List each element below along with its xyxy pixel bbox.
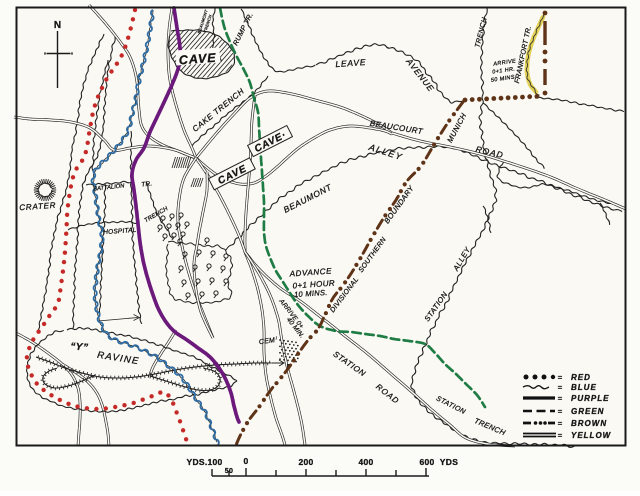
svg-text:=: =: [558, 419, 563, 428]
svg-text:=: =: [558, 394, 563, 403]
svg-text:=: =: [558, 383, 563, 392]
svg-text:600: 600: [419, 457, 434, 467]
svg-text:0: 0: [243, 456, 248, 466]
svg-text:CAVE: CAVE: [178, 51, 217, 68]
svg-text:YDS.: YDS.: [186, 457, 207, 467]
svg-text:YELLOW: YELLOW: [571, 431, 612, 440]
svg-text:400: 400: [358, 457, 373, 467]
svg-text:TR.: TR.: [141, 180, 153, 188]
svg-text:YDS: YDS: [440, 457, 458, 467]
svg-text:=: =: [558, 373, 563, 382]
svg-text:BLUE: BLUE: [571, 383, 597, 392]
svg-text:PURPLE: PURPLE: [571, 394, 609, 403]
svg-text:“Y”: “Y”: [70, 341, 89, 354]
svg-text:50: 50: [225, 468, 233, 475]
svg-text:200: 200: [298, 457, 313, 467]
svg-text:BROWN: BROWN: [571, 419, 607, 428]
svg-text:RED: RED: [571, 373, 591, 382]
svg-text:=: =: [558, 407, 563, 416]
svg-text:GREEN: GREEN: [571, 407, 604, 416]
svg-text:=: =: [558, 431, 563, 440]
svg-text:N: N: [54, 20, 61, 31]
svg-text:100: 100: [207, 457, 222, 467]
